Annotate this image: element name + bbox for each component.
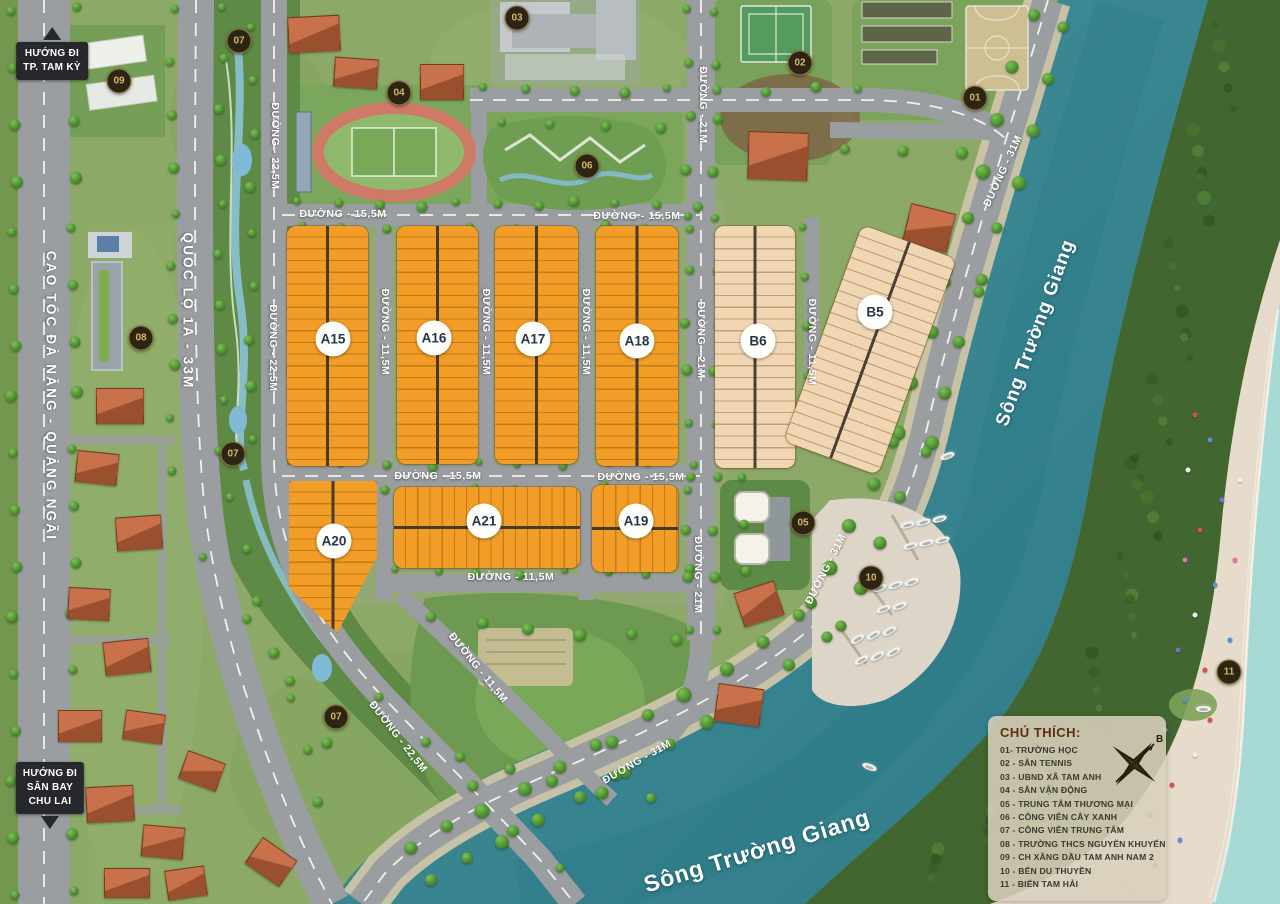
master-plan-map: CAO TỐC ĐÀ NẴNG - QUẢNG NGÃIQUỐC LỘ 1A -… [0,0,1280,904]
terrain-art [0,0,1280,904]
